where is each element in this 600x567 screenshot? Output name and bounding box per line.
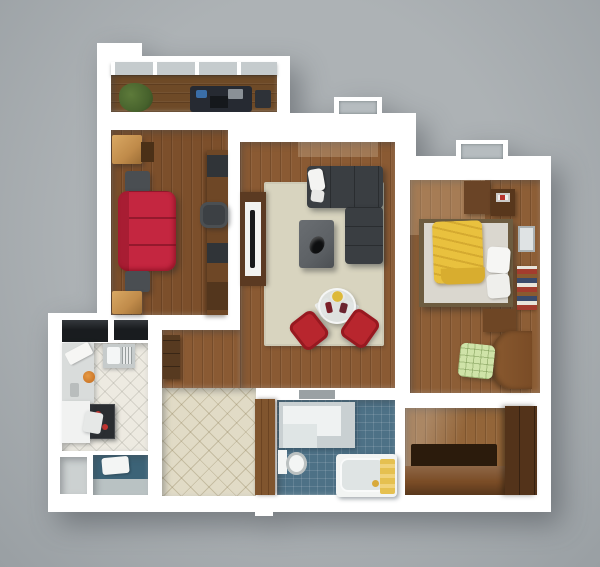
sink-basin — [107, 347, 120, 364]
office-chair — [200, 202, 228, 228]
entry-low-cabinet — [405, 466, 507, 495]
stored-box — [228, 89, 243, 99]
red-sofa — [118, 191, 176, 271]
hallway-floor — [162, 388, 256, 496]
sink-drainboard — [122, 347, 132, 364]
desk-cabinet — [483, 309, 516, 332]
bed-pillow-2 — [486, 273, 511, 299]
table-item — [339, 302, 348, 313]
entry-wardrobe — [505, 406, 537, 495]
tv-unit — [240, 192, 266, 286]
wall-mirror — [518, 226, 535, 252]
office-cabinet-top — [112, 135, 142, 164]
kitchen-jar — [70, 383, 79, 397]
corner-sofa-vertical — [345, 207, 383, 264]
bathroom-door — [255, 399, 275, 495]
wall-niche — [299, 390, 335, 399]
window-box-living — [334, 97, 382, 119]
office-cabinet-bottom — [112, 291, 142, 314]
shower-enclosure — [279, 402, 355, 448]
wall-entrance-marker — [255, 500, 273, 516]
food-plate — [330, 291, 345, 302]
stove-burner-2 — [102, 424, 108, 430]
entry-floor-mat — [411, 444, 497, 468]
window-glass-bedroom — [461, 144, 503, 159]
sofa-pillow-2 — [310, 189, 325, 203]
stored-dark-item — [210, 96, 228, 108]
office-side-table-top — [125, 171, 150, 192]
bedroom-nightstand — [491, 189, 515, 216]
decor-bowl — [307, 234, 328, 256]
bathtub — [336, 454, 397, 497]
balcony-stored-items — [190, 86, 252, 112]
office-side-table-bottom — [125, 271, 150, 292]
blanket-drape — [441, 267, 486, 285]
wine-bottle — [325, 301, 333, 313]
office-printer — [207, 243, 228, 263]
kitchen-chair — [82, 411, 103, 435]
bed-pillow-1 — [486, 246, 511, 274]
tv-screen — [250, 210, 255, 268]
balcony-railing — [111, 62, 277, 75]
balcony-plant — [119, 83, 153, 112]
hall-wall-cabinet — [163, 335, 180, 379]
window-box-bedroom — [456, 140, 508, 164]
window-glass-living — [339, 101, 377, 114]
floorplan-render — [0, 0, 600, 567]
bike-blue-accent — [196, 90, 207, 98]
bath-toy — [372, 480, 379, 487]
bedroom-desk — [490, 331, 532, 389]
office-monitor — [207, 155, 228, 177]
toilet-bowl — [286, 452, 307, 475]
wc-fixture — [101, 456, 129, 475]
picture-red-detail — [500, 195, 505, 200]
bedroom-dresser — [464, 181, 490, 214]
shower-step — [283, 424, 317, 448]
office-dark-box — [141, 142, 154, 162]
kitchen-sink — [103, 344, 135, 368]
window-light-patch — [298, 142, 378, 157]
orange-pot — [83, 371, 95, 383]
kitchen-cabinet-top-2 — [114, 320, 148, 340]
coffee-table — [299, 220, 334, 268]
book-shelf — [517, 266, 537, 310]
balcony-crate — [255, 90, 271, 108]
kitchen-cabinet-top-1 — [62, 320, 108, 342]
yellow-towels — [380, 459, 395, 494]
green-checked-chair — [457, 342, 495, 379]
office-low-shelf — [207, 282, 228, 310]
storage-floor — [60, 457, 87, 494]
